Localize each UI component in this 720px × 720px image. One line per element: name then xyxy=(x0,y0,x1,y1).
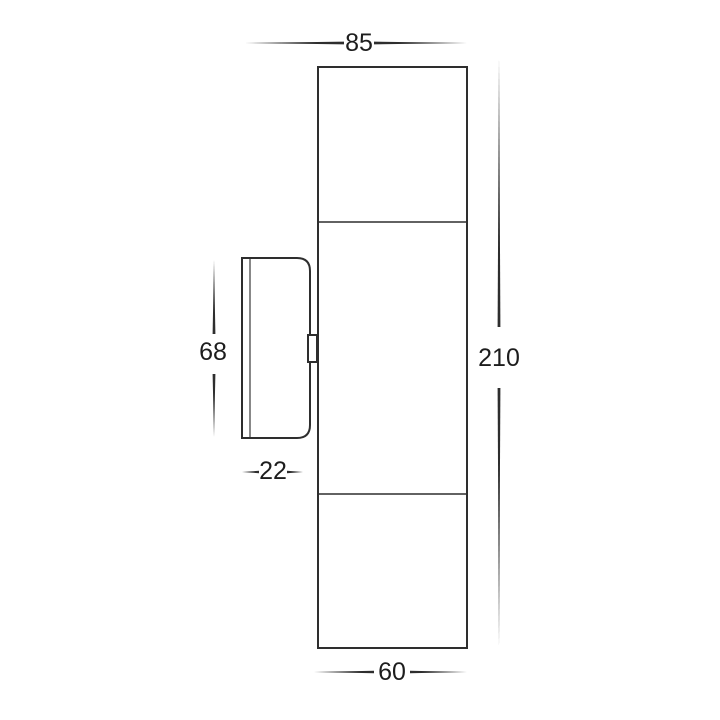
bracket-connector-tab xyxy=(308,335,317,362)
dim-arrow-left xyxy=(314,671,374,674)
dim-arrow-right xyxy=(287,471,303,473)
dimension-bracket-depth: 22 xyxy=(242,457,303,485)
dim-label-body-width: 60 xyxy=(378,658,406,686)
dim-arrow-down xyxy=(213,374,216,437)
dim-arrow-left xyxy=(242,471,259,473)
dim-arrow-up xyxy=(498,58,501,327)
bracket-outline xyxy=(242,258,310,438)
fixture-body-outline xyxy=(318,67,467,648)
dim-label-bracket-depth: 22 xyxy=(259,457,287,485)
dim-label-top-projection: 85 xyxy=(345,29,373,57)
dimension-bracket-height: 68 xyxy=(199,260,227,437)
dim-arrow-right xyxy=(410,671,467,674)
dimension-body-width: 60 xyxy=(314,658,467,686)
dimension-overall-height: 210 xyxy=(478,58,520,647)
dim-arrow-right xyxy=(374,42,467,45)
dim-label-overall-height: 210 xyxy=(478,344,520,372)
fixture-body xyxy=(318,67,467,648)
mounting-bracket xyxy=(242,258,317,438)
dimension-drawing: 85 210 68 22 60 xyxy=(0,0,720,720)
dim-arrow-up xyxy=(213,260,216,334)
drawing-canvas: 85 210 68 22 60 xyxy=(0,0,720,720)
dim-arrow-down xyxy=(498,388,501,647)
dim-label-bracket-height: 68 xyxy=(199,338,227,366)
dim-arrow-left xyxy=(245,42,344,45)
dimension-top-projection: 85 xyxy=(245,29,467,57)
